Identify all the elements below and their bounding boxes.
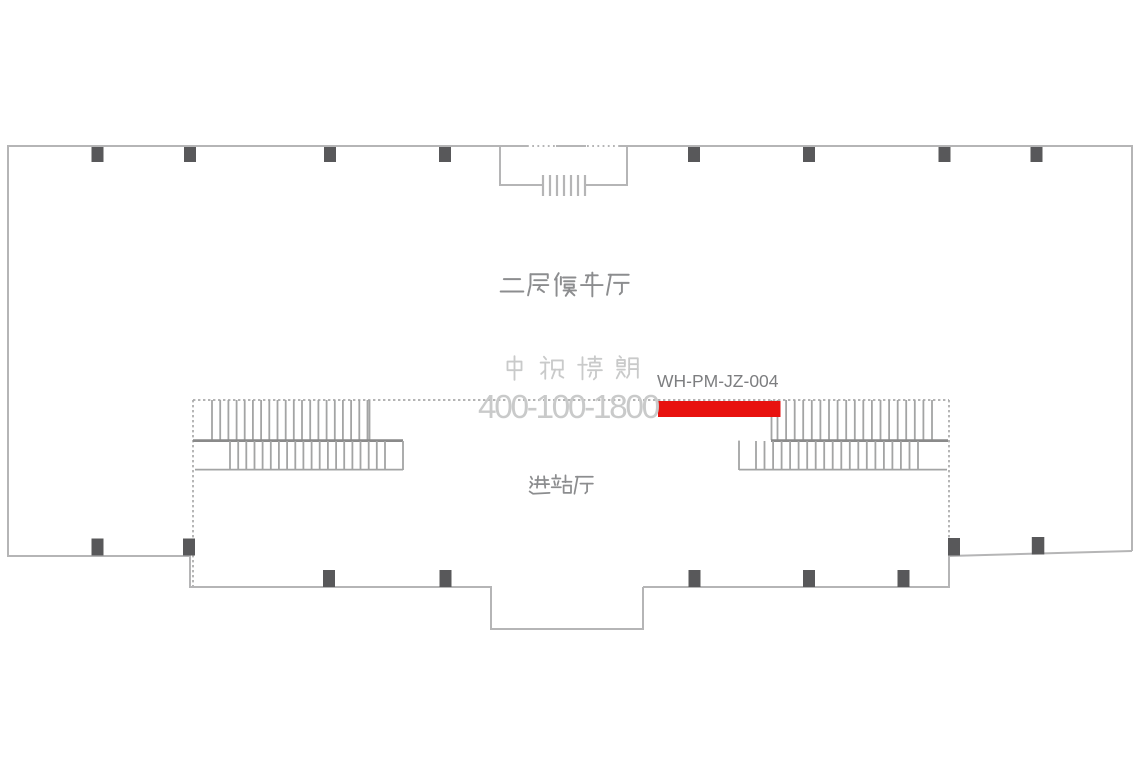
svg-text:WH-PM-JZ-004: WH-PM-JZ-004 xyxy=(657,371,779,391)
svg-text:400-100-1800: 400-100-1800 xyxy=(478,389,660,426)
